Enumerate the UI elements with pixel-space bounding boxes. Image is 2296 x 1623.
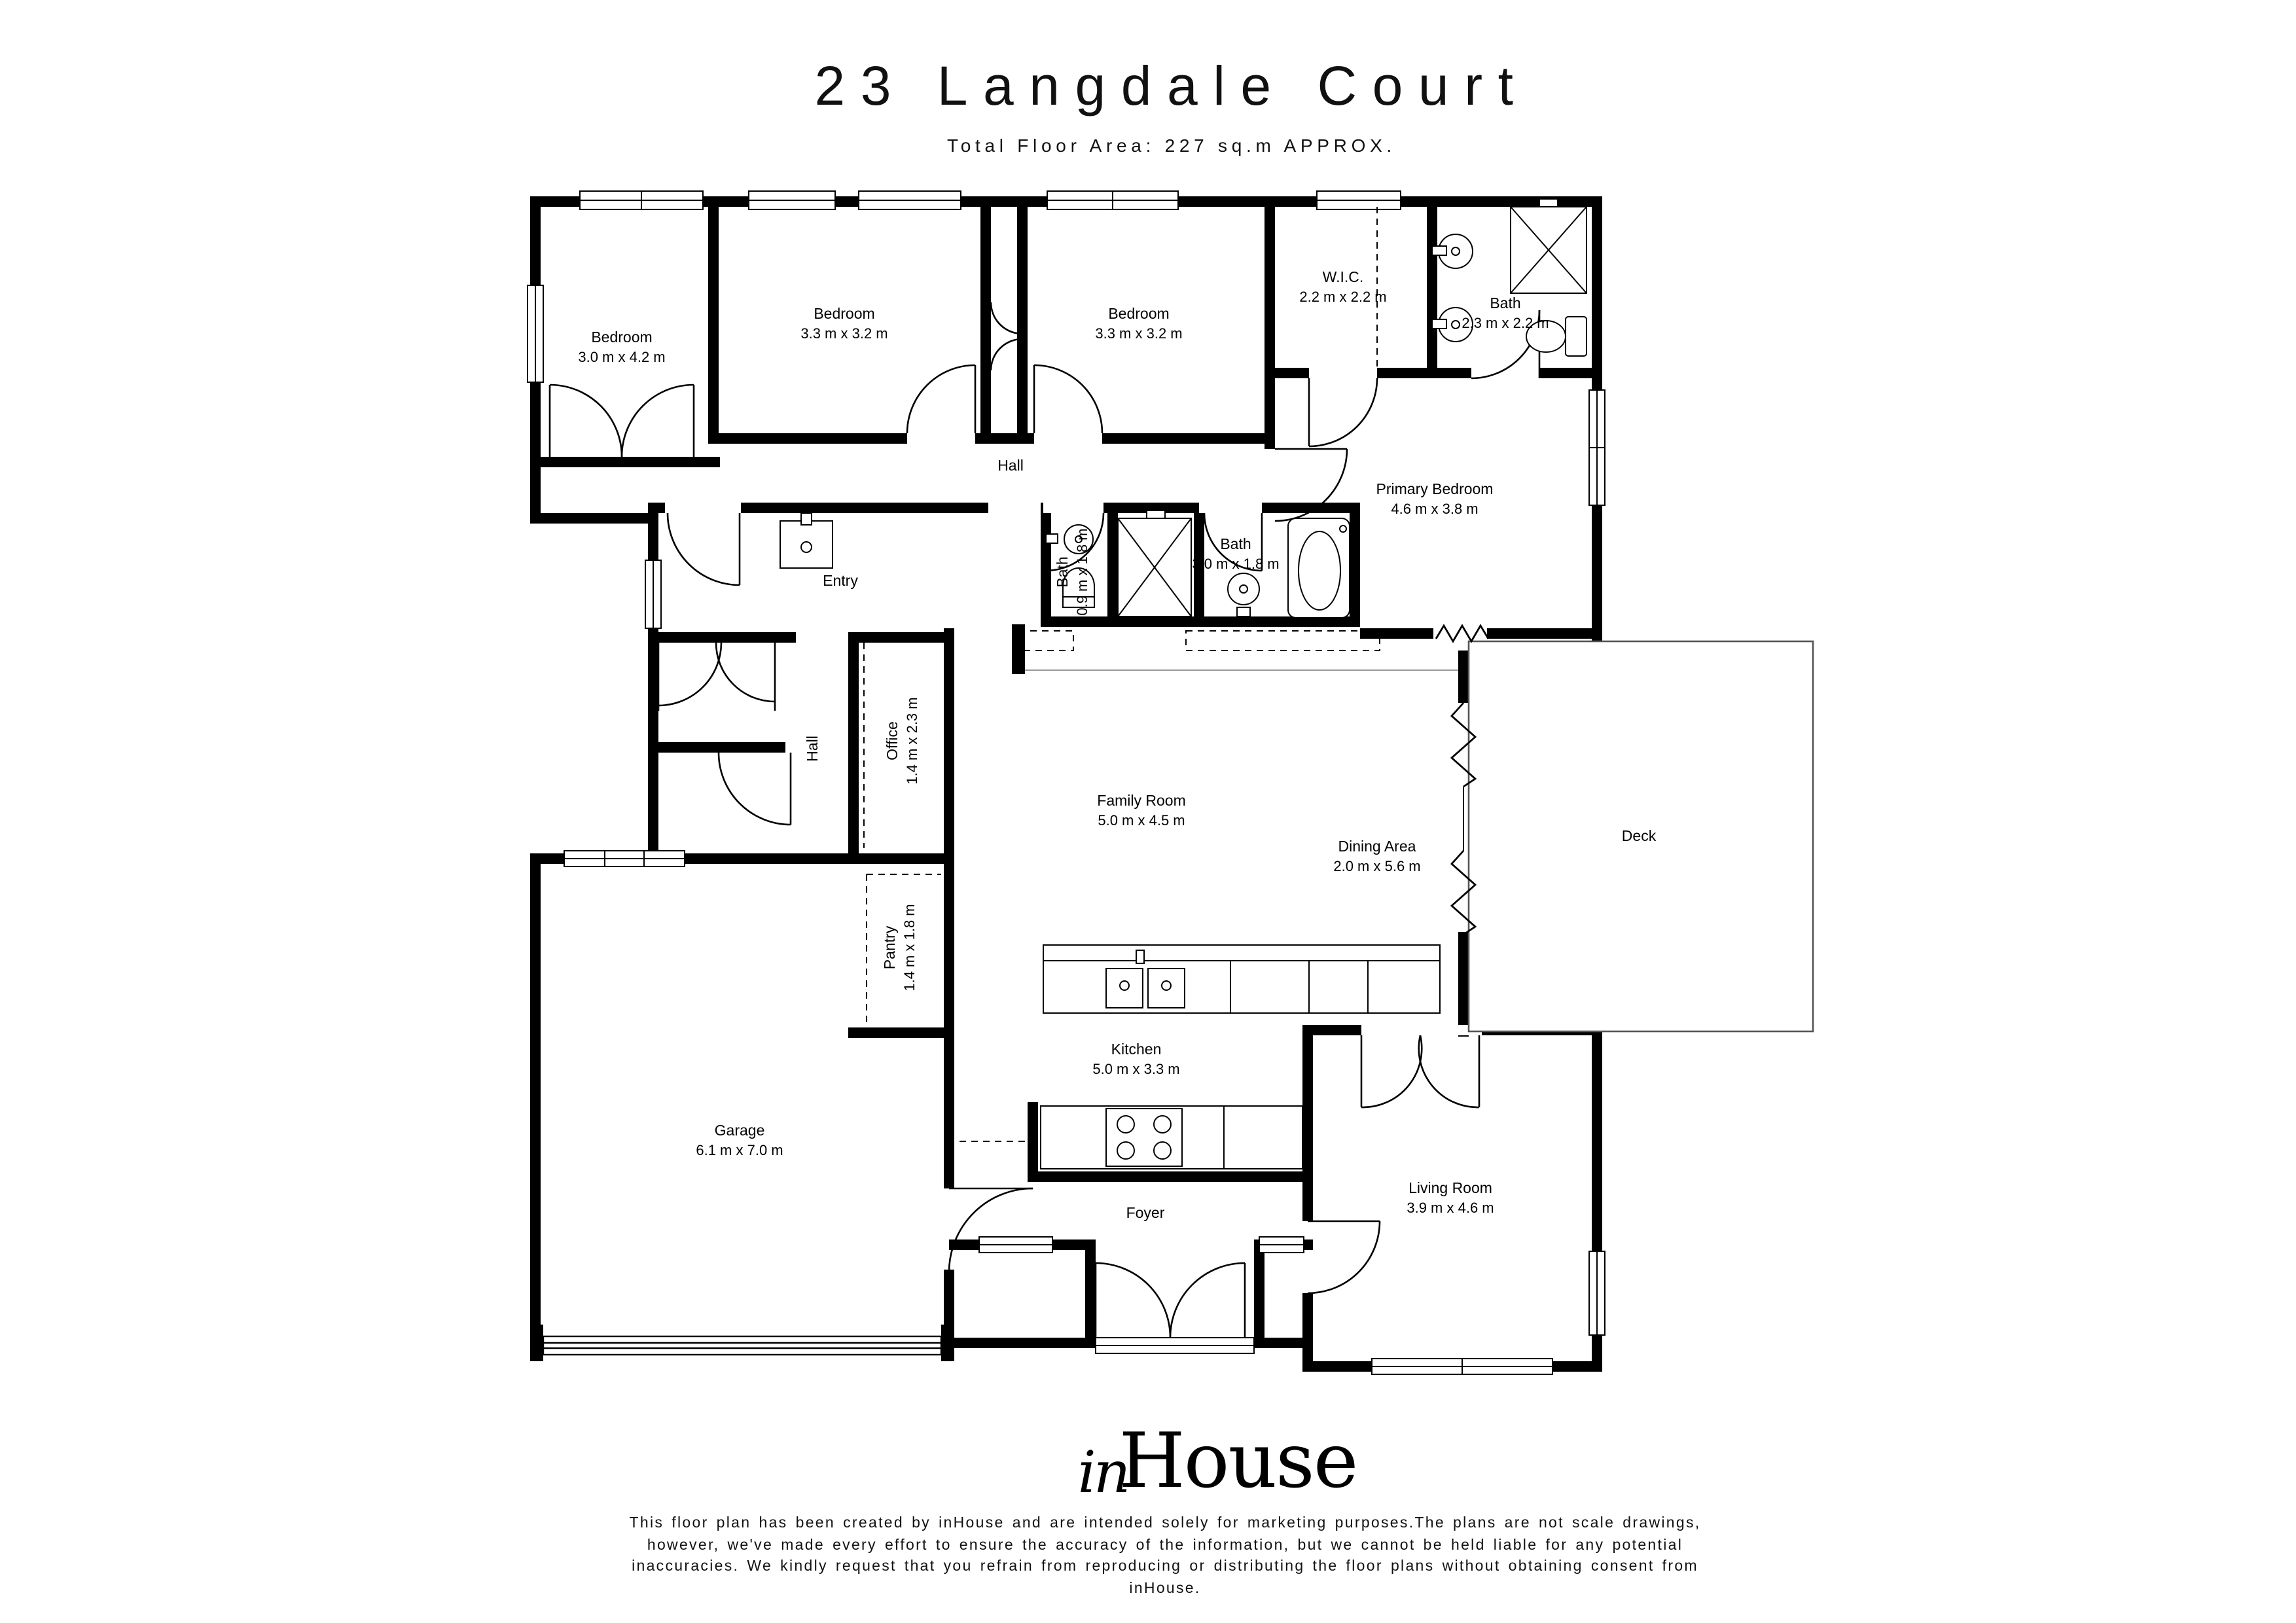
bedroom3-door: [1034, 365, 1102, 433]
room-label-hall-top: Hall: [997, 457, 1024, 477]
garage-foyer-door: [949, 1188, 1033, 1272]
room-label-office: Office1.4 m x 2.3 m: [884, 697, 922, 784]
room-label-bath-main: Bath3.0 m x 1.8 m: [1192, 536, 1279, 574]
logo-serif-part: House: [1119, 1416, 1357, 1505]
room-label-garage: Garage6.1 m x 7.0 m: [696, 1122, 783, 1160]
room-label-pantry: Pantry1.4 m x 1.8 m: [882, 904, 920, 991]
front-doors: [1096, 1263, 1245, 1338]
entry-door: [668, 513, 740, 585]
page: 23 Langdale Court Total Floor Area: 227 …: [0, 0, 2296, 1623]
room-label-living-room: Living Room3.9 m x 4.6 m: [1407, 1180, 1494, 1218]
wardrobe-doors: [550, 385, 694, 457]
room-label-foyer: Foyer: [1126, 1205, 1165, 1224]
room-label-entry: Entry: [823, 573, 858, 592]
room-label-deck: Deck: [1622, 828, 1656, 847]
room-label-bath-top: Bath2.3 m x 2.2 m: [1462, 295, 1549, 333]
living-french-doors: [1361, 1035, 1479, 1107]
shower-icon: [1511, 199, 1587, 293]
room-label-bedroom1: Bedroom3.0 m x 4.2 m: [578, 329, 665, 367]
disclaimer-text: This floor plan has been created by inHo…: [612, 1513, 1718, 1600]
hall-closet-doors: [658, 643, 775, 711]
room-label-primary-bedroom: Primary Bedroom4.6 m x 3.8 m: [1376, 481, 1494, 519]
stove-icon: [1041, 1106, 1302, 1169]
bathtub-icon: [1288, 518, 1350, 618]
inhouse-logo: inHouse: [1078, 1416, 1357, 1505]
room-label-bedroom2: Bedroom3.3 m x 3.2 m: [800, 306, 888, 344]
room-label-wic: W.I.C.2.2 m x 2.2 m: [1299, 269, 1386, 307]
sink-icon: [780, 513, 833, 568]
garage-door: [543, 1336, 941, 1355]
bedroom2-door: [907, 365, 975, 433]
garage-hall-door: [719, 753, 791, 825]
room-label-hall-mid: Hall: [804, 736, 824, 762]
logo-script-part: in: [1078, 1440, 1128, 1507]
door-openings: [665, 368, 1539, 1035]
room-label-family-room: Family Room5.0 m x 4.5 m: [1097, 793, 1185, 830]
room-label-bedroom3: Bedroom3.3 m x 3.2 m: [1095, 306, 1182, 344]
room-label-kitchen: Kitchen5.0 m x 3.3 m: [1092, 1041, 1179, 1079]
room-label-dining-area: Dining Area2.0 m x 5.6 m: [1333, 838, 1420, 876]
living-door: [1308, 1221, 1380, 1293]
wic-door: [1309, 378, 1377, 446]
room-label-bath-small: Bath0.9 m x 1.8 m: [1054, 528, 1092, 615]
sink-icon: [1228, 573, 1259, 616]
kitchen-island: [1043, 945, 1440, 1013]
shower-icon: [1118, 510, 1191, 616]
